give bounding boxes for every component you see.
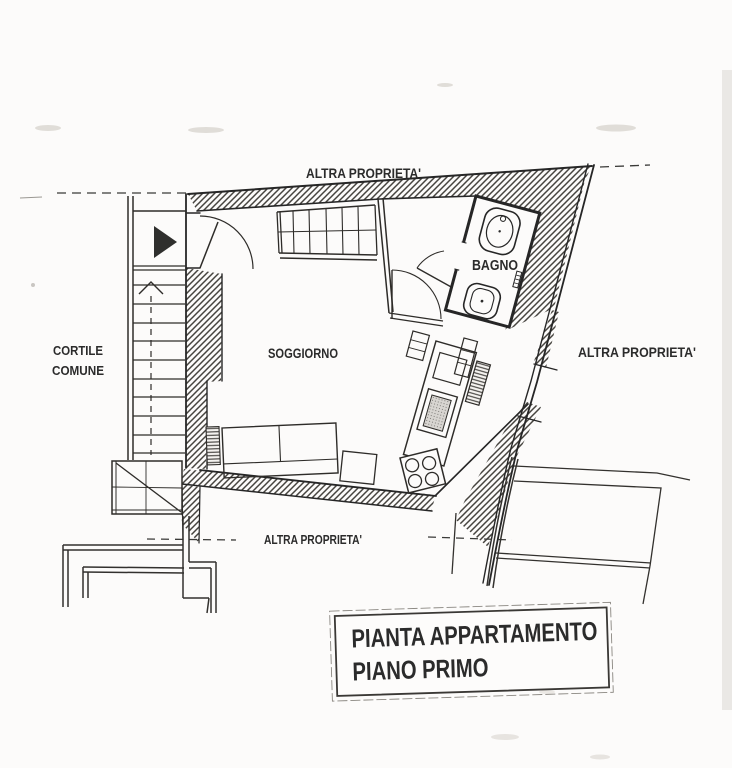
window-radiator-icon bbox=[465, 361, 490, 405]
title-box: PIANTA APPARTAMENTO PIANO PRIMO bbox=[330, 602, 614, 701]
label-other-property-top: ALTRA PROPRIETA' bbox=[306, 165, 421, 181]
anteroom bbox=[378, 198, 453, 326]
wall-right-lower-wedge bbox=[456, 402, 541, 547]
label-courtyard-line2: COMUNE bbox=[52, 363, 104, 378]
side-cabinet bbox=[340, 451, 377, 484]
door-swing-arc bbox=[200, 216, 253, 269]
kitchen-appliance bbox=[433, 353, 467, 386]
title-line2: PIANO PRIMO bbox=[352, 652, 489, 686]
entrance-door bbox=[200, 216, 253, 269]
wall-bottom bbox=[180, 469, 436, 511]
stair-landing bbox=[112, 461, 182, 514]
anteroom-left-wall bbox=[378, 198, 393, 313]
label-living-room: SOGGIORNO bbox=[268, 345, 338, 361]
sofa-icon bbox=[222, 423, 338, 478]
dashed-boundary-bottom-left bbox=[147, 539, 236, 540]
label-other-property-right: ALTRA PROPRIETA' bbox=[578, 344, 696, 360]
dashed-boundary-top-right bbox=[600, 165, 650, 167]
dashed-boundary-bottom-right bbox=[428, 537, 512, 540]
entry-direction-triangle-icon bbox=[154, 226, 177, 258]
anteroom-threshold bbox=[389, 313, 443, 326]
door-leaf bbox=[200, 222, 218, 268]
stair-left-boundary bbox=[128, 196, 133, 460]
scanned-floor-plan-page: PIANTA APPARTAMENTO PIANO PRIMO ALTRA PR… bbox=[0, 0, 732, 768]
stair-steps bbox=[133, 285, 185, 453]
floor-plan-drawing: PIANTA APPARTAMENTO PIANO PRIMO ALTRA PR… bbox=[0, 0, 732, 768]
label-courtyard-line1: CORTILE bbox=[53, 343, 103, 358]
bathroom-door-arc bbox=[417, 251, 444, 268]
small-fixture-1 bbox=[406, 331, 429, 361]
radiator-icon bbox=[206, 427, 220, 465]
scan-edge-shadow bbox=[722, 70, 732, 710]
bathroom-door-leaf bbox=[417, 268, 453, 288]
kitchen-zone bbox=[340, 331, 491, 493]
kitchen-counter bbox=[403, 341, 476, 466]
external-staircase bbox=[128, 196, 186, 460]
label-bathroom: BAGNO bbox=[472, 258, 518, 274]
internal-staircase bbox=[277, 205, 377, 260]
label-other-property-bottom: ALTRA PROPRIETA' bbox=[264, 532, 362, 547]
up-arrow-chevron-icon bbox=[139, 282, 163, 294]
